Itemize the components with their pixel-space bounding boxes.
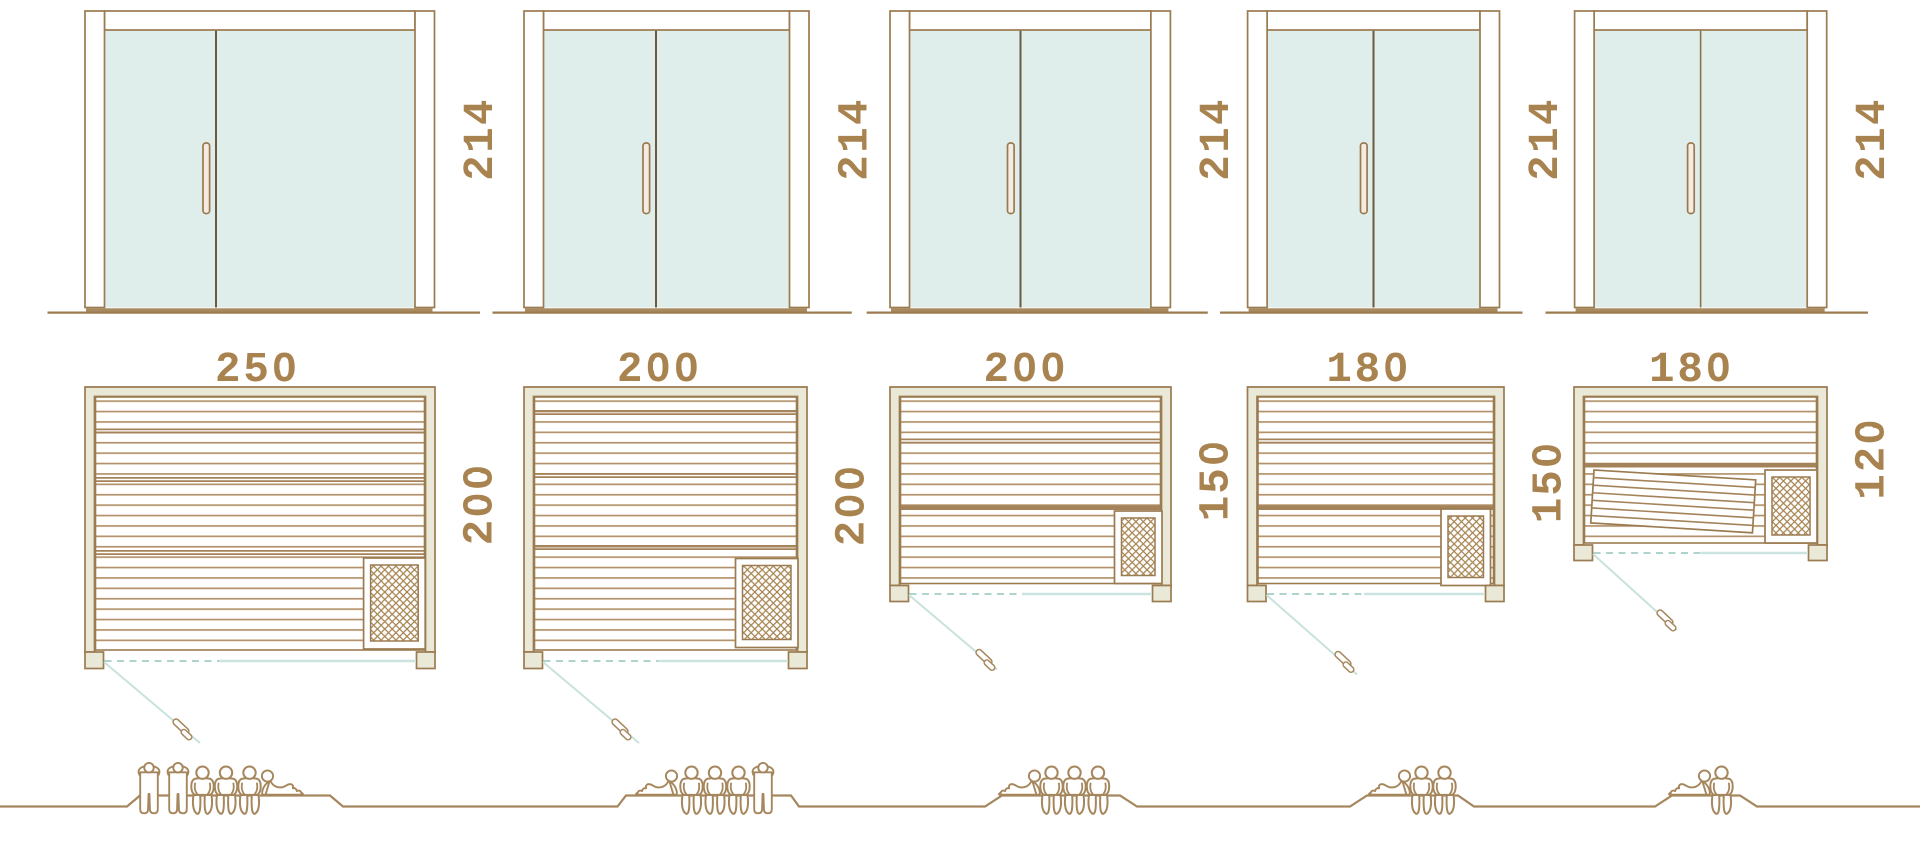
svg-text:214: 214 (1193, 97, 1241, 180)
svg-text:214: 214 (1522, 97, 1570, 180)
svg-text:214: 214 (457, 97, 505, 180)
svg-text:214: 214 (1849, 97, 1897, 180)
svg-text:214: 214 (832, 97, 880, 180)
